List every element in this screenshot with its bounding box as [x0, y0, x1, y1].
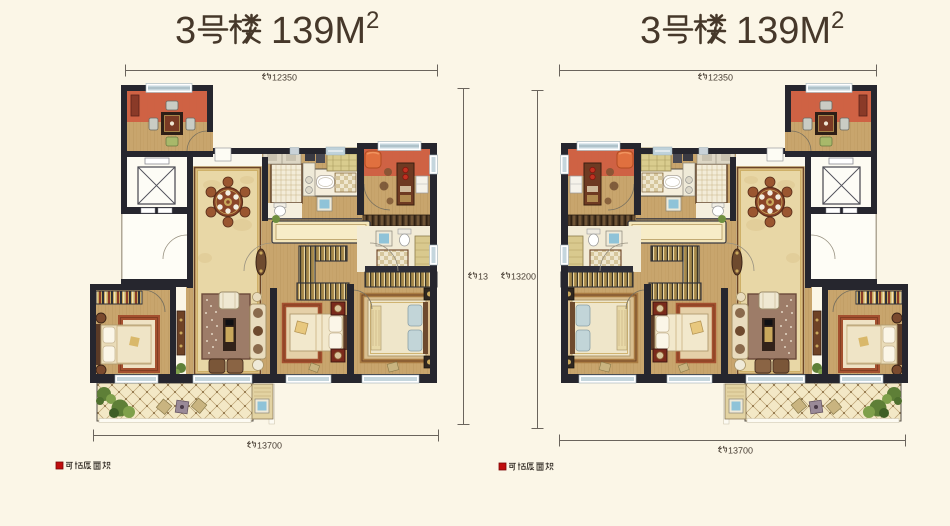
svg-text:13700: 13700: [728, 446, 753, 456]
svg-text:12350: 12350: [708, 73, 733, 83]
svg-text:13: 13: [478, 272, 488, 282]
svg-text:13200: 13200: [511, 272, 536, 282]
svg-text:12350: 12350: [272, 73, 297, 83]
svg-text:13700: 13700: [257, 441, 282, 451]
